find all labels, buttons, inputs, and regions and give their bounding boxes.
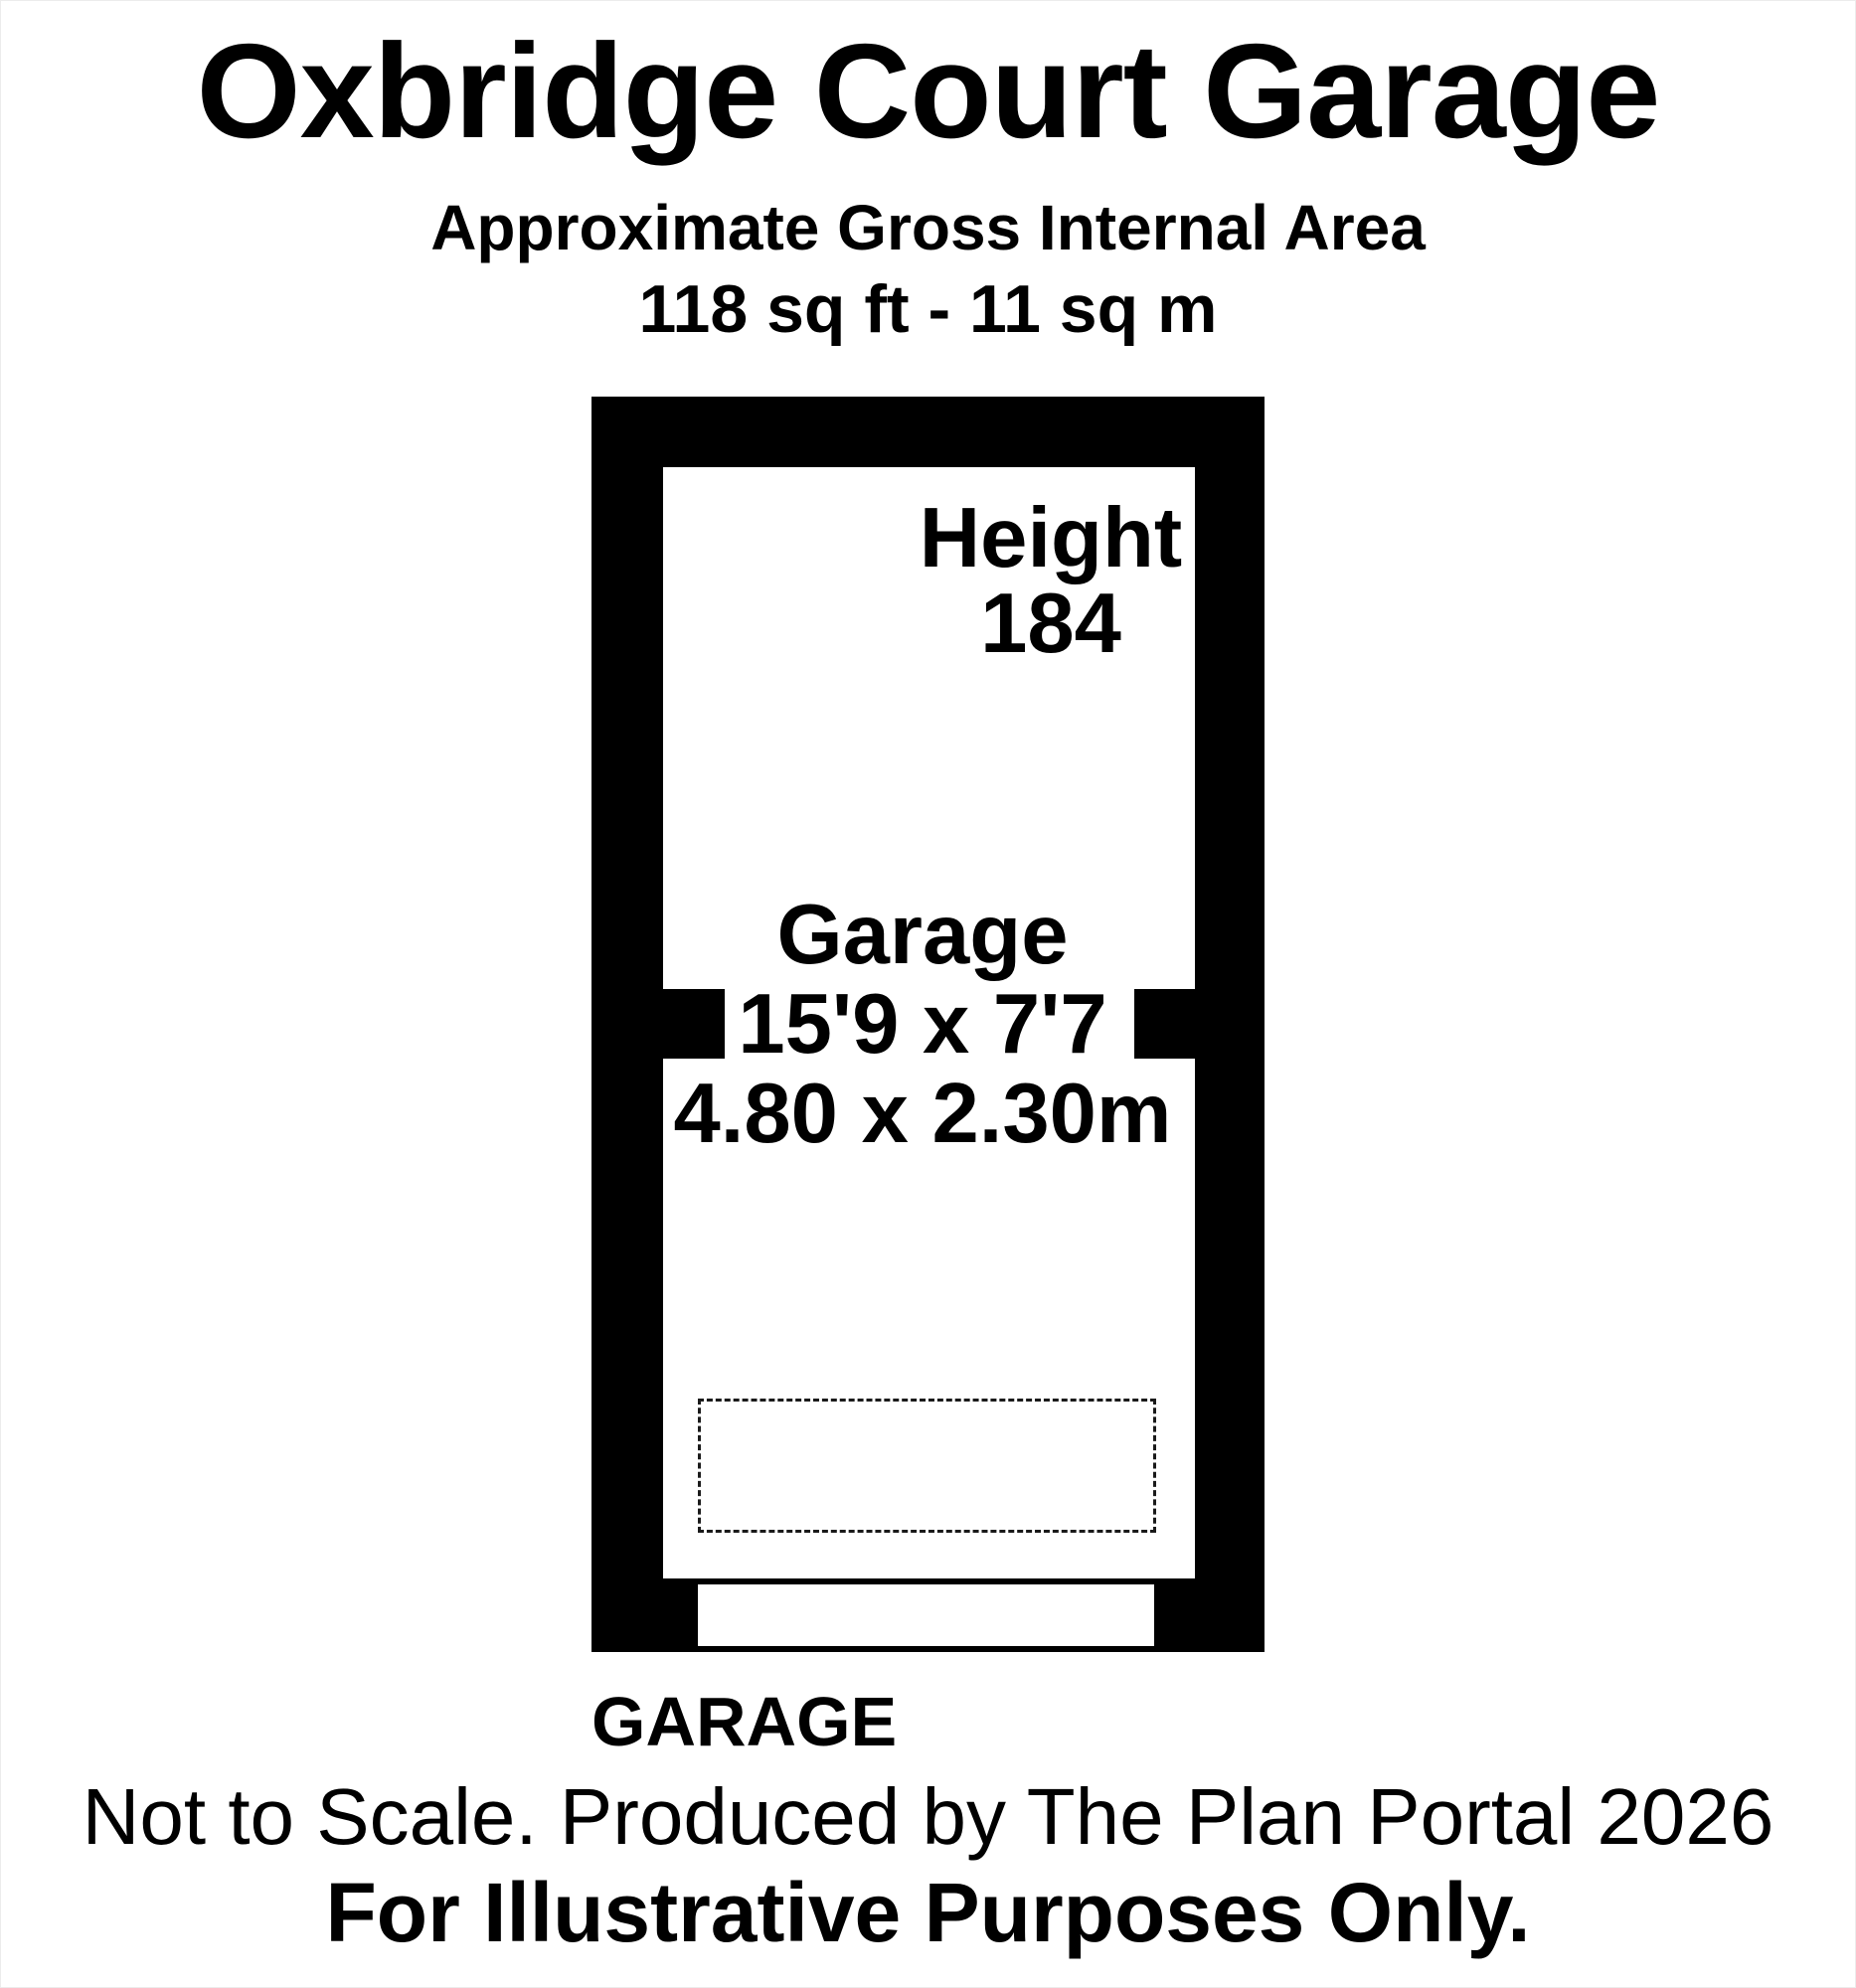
page-subtitle: Approximate Gross Internal Area — [0, 191, 1856, 264]
floorplan-drawing: Height 184 Garage 15'9 x 7'7 4.80 x 2.30… — [591, 397, 1265, 1652]
wall-left — [591, 397, 663, 1652]
page-title: Oxbridge Court Garage — [0, 14, 1856, 168]
room-dimensions-metric: 4.80 x 2.30m — [654, 1070, 1191, 1159]
disclaimer-illustrative: For Illustrative Purposes Only. — [0, 1865, 1856, 1961]
door-opening-outer-line — [698, 1646, 1154, 1652]
height-value: 184 — [802, 581, 1299, 667]
wall-top — [591, 397, 1265, 467]
room-dimensions-imperial: 15'9 x 7'7 — [654, 980, 1191, 1070]
floorplan-page: Oxbridge Court Garage Approximate Gross … — [0, 0, 1856, 1988]
height-label: Height — [802, 496, 1299, 581]
door-opening-inner-line — [663, 1578, 1195, 1584]
gross-internal-area: 118 sq ft - 11 sq m — [0, 270, 1856, 348]
plan-caption: GARAGE — [591, 1682, 897, 1761]
wall-bottom-left-stub — [591, 1578, 698, 1652]
wall-bottom-right-stub — [1154, 1578, 1265, 1652]
room-name: Garage — [654, 891, 1191, 980]
room-annotation: Garage 15'9 x 7'7 4.80 x 2.30m — [654, 891, 1191, 1159]
garage-door-dashed-outline — [698, 1399, 1156, 1533]
ceiling-height-annotation: Height 184 — [802, 496, 1299, 667]
disclaimer-producer: Not to Scale. Produced by The Plan Porta… — [0, 1771, 1856, 1863]
